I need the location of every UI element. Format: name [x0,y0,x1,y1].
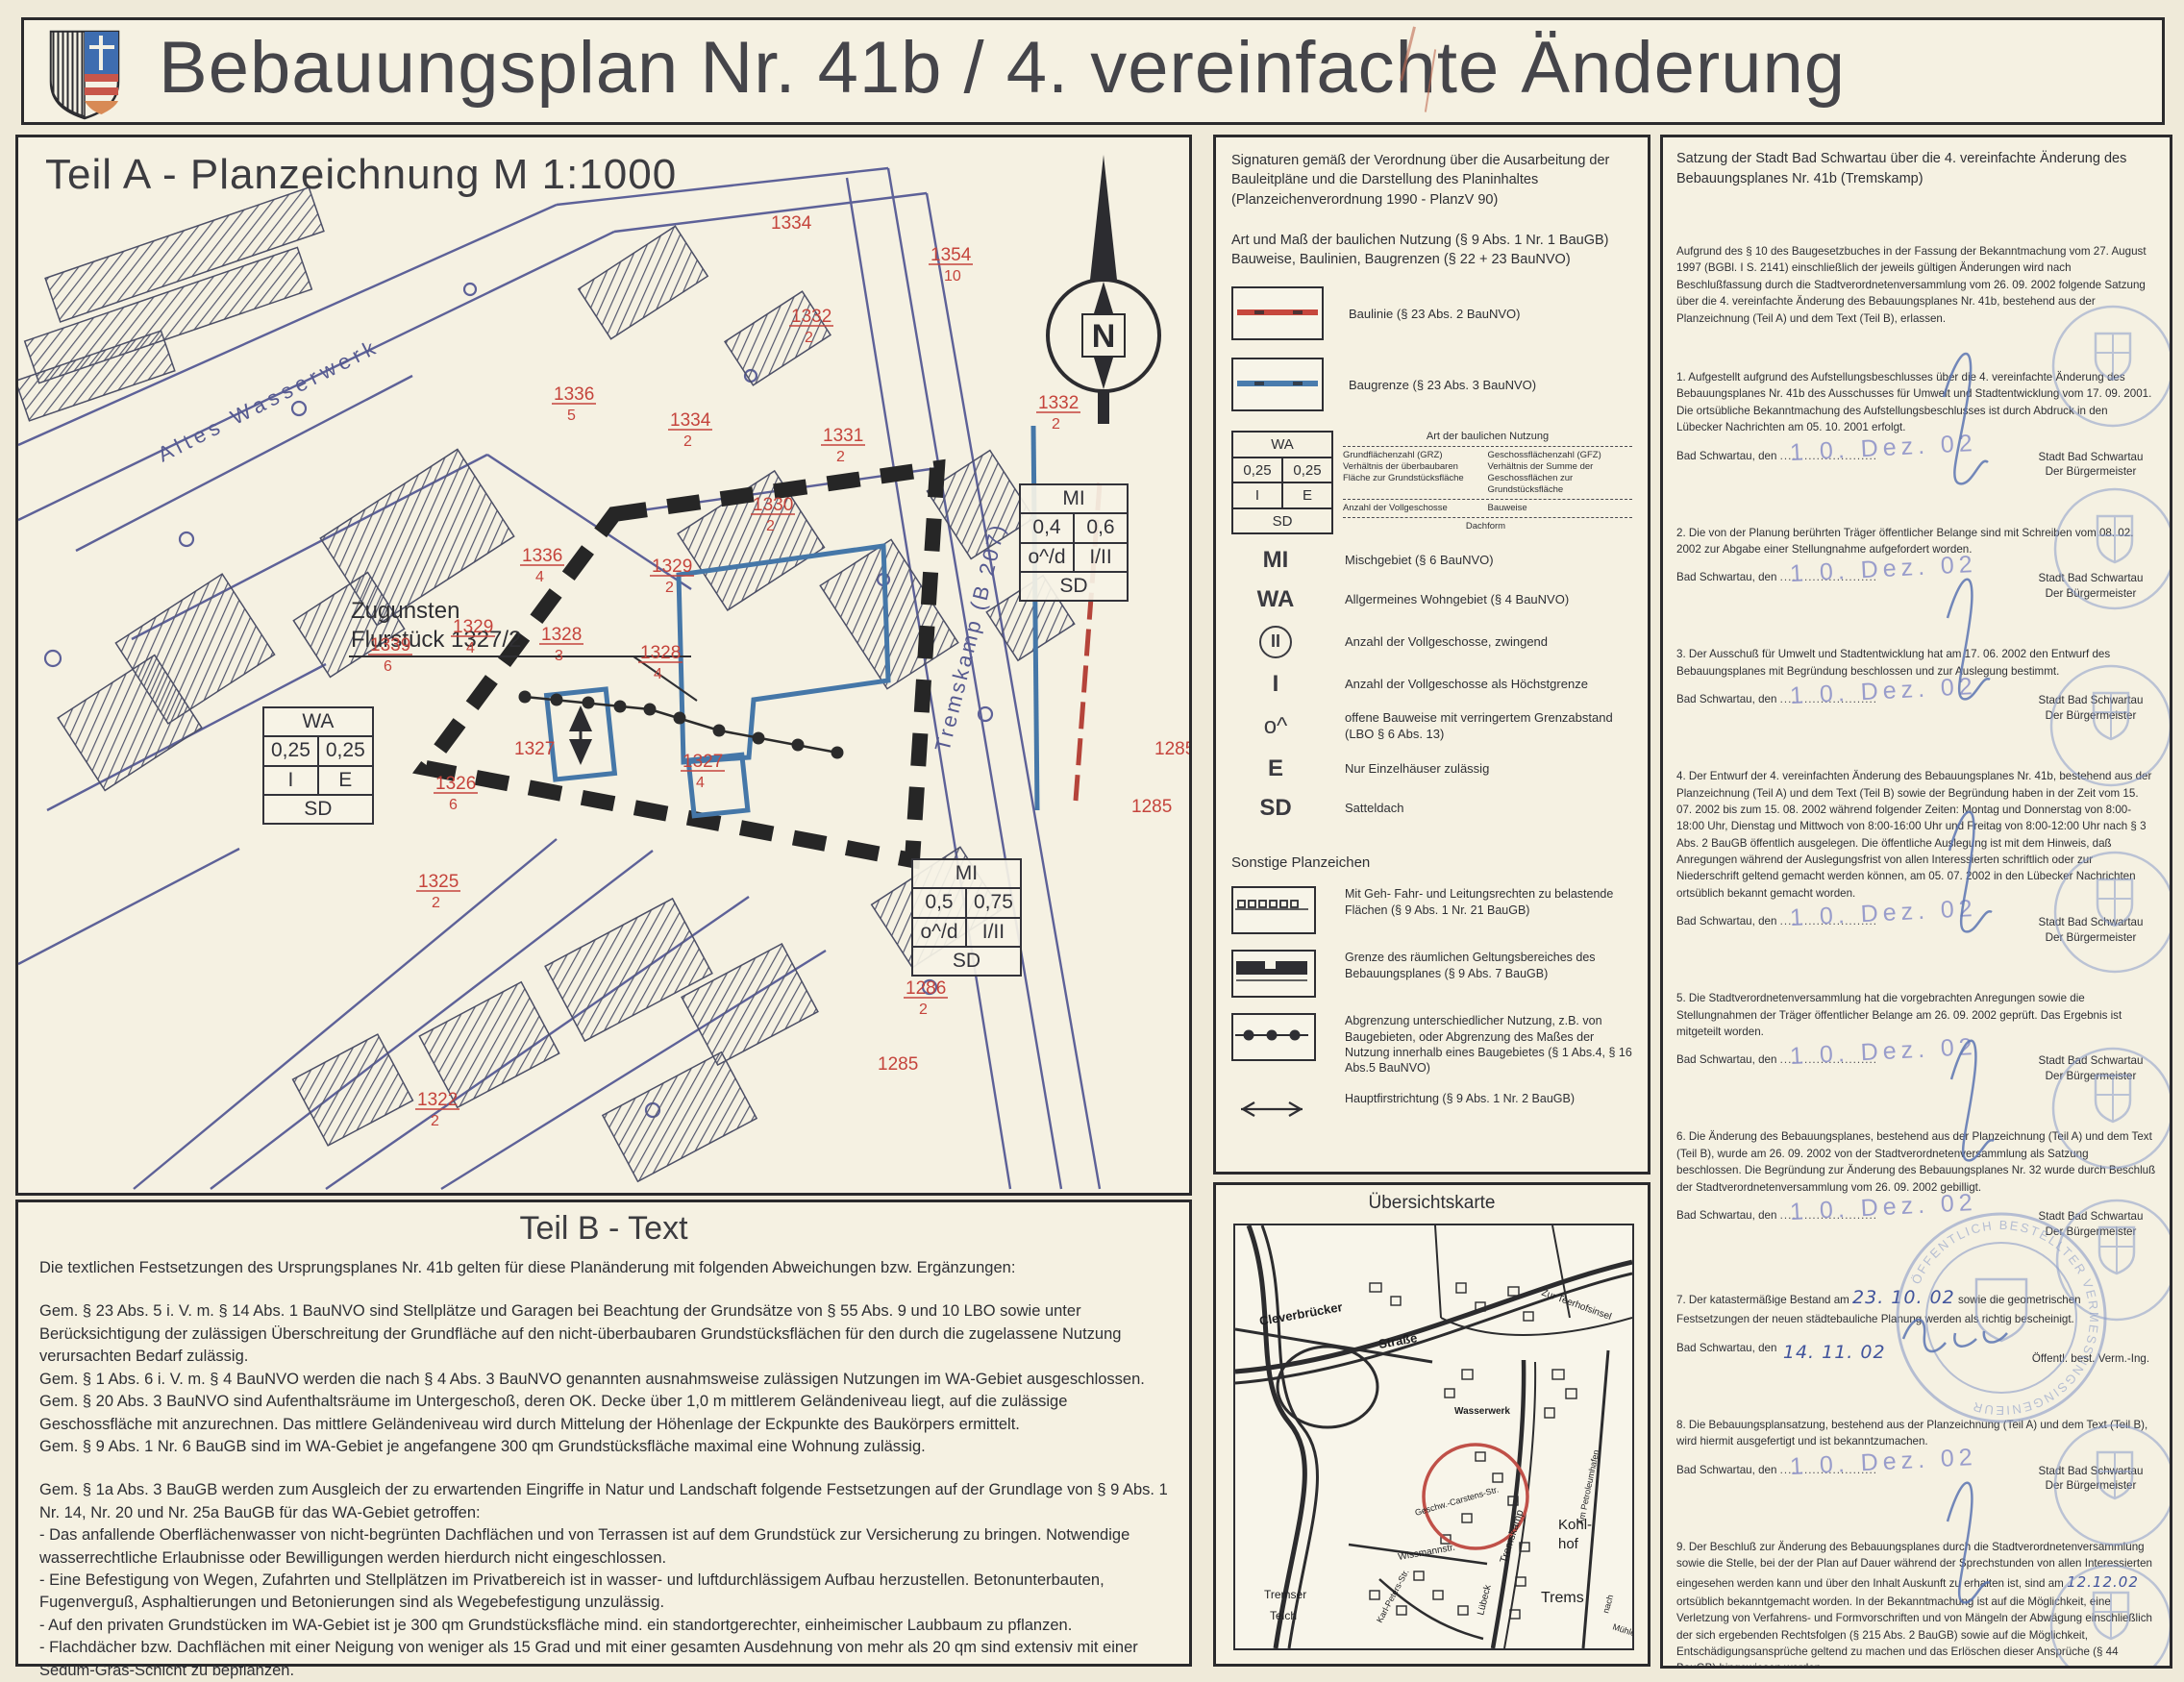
svg-text:6: 6 [384,658,392,675]
svg-text:1330: 1330 [753,495,793,515]
svg-text:2: 2 [919,1002,928,1018]
handwritten-date: 12.12.02 [2067,1573,2139,1591]
signature-row-5: Bad Schwartau, den .....................… [1676,1053,2156,1096]
floors-value: I/II [966,918,1021,947]
page-title: Bebauungsplan Nr. 41b / 4. vereinfachte … [159,26,2148,110]
parcel-number: 13266 [434,774,478,813]
svg-text:1331: 1331 [823,426,863,446]
parcel-number: 13312 [821,426,865,465]
roof-value: SD [1020,572,1128,601]
legend-abbrev-floors-mandatory: II Anzahl der Vollgeschosse, zwingend [1231,626,1632,658]
overview-map-label: hof [1558,1536,1579,1552]
legend-item-geltungsbereich: Grenze des räumlichen Geltungsbereiches … [1231,950,1632,998]
satzung-item-6: 6. Die Änderung des Bebauungsplanes, bes… [1676,1128,2156,1196]
parcel-number: 13283 [539,625,583,664]
legend-item-hauptfirstrichtung: Hauptfirstrichtung (§ 9 Abs. 1 Nr. 2 Bau… [1231,1091,1632,1125]
svg-text:N: N [1092,318,1116,355]
mi-usage-box-2: MI 0,50,75 o^/dI/II SD [911,858,1022,977]
svg-text:1334: 1334 [670,410,711,431]
grz-value: 0,25 [263,736,318,765]
svg-text:1339: 1339 [370,635,410,655]
north-arrow-icon: N [1048,155,1159,424]
svg-text:1328: 1328 [541,625,582,645]
handwritten-date: 14. 11. 02 [1783,1342,1886,1363]
bauweise-value: E [318,766,373,795]
svg-text:1286: 1286 [906,978,946,999]
legend-abbrev-wa: WA Allgermeines Wohngebiet (§ 4 BauNVO) [1231,586,1632,613]
usage-code: MI [1020,484,1128,513]
overview-map-label: Wissmannstr. [1398,1543,1456,1563]
parcel-number: 13396 [368,635,412,675]
satzung-item-5: 5. Die Stadtverordnetenversammlung hat d… [1676,990,2156,1040]
overview-map-label: Cleverbrücker [1258,1299,1344,1328]
grz-value: 0,4 [1020,513,1074,542]
parcel-number: 13364 [520,546,564,585]
plan-map: N Altes Wasserwerk Tremskamp (B 207) Zug… [18,137,1189,1193]
svg-text:2: 2 [431,1113,439,1129]
teil-b-paragraph: Gem. § 9 Abs. 1 Nr. 6 BauGB sind im WA-G… [39,1436,1168,1458]
legend-item-geh-fahr-leitungsrechte: Mit Geh- Fahr- und Leitungsrechten zu be… [1231,886,1632,934]
svg-text:1354: 1354 [931,245,972,265]
signature-row-4: Bad Schwartau, den .....................… [1676,915,2156,957]
legend-item-baulinie: Baulinie (§ 23 Abs. 2 BauNVO) [1231,286,1632,340]
svg-text:6: 6 [449,797,458,813]
svg-text:2: 2 [1052,416,1060,433]
city-crest-icon [47,28,122,120]
circled-floors-icon: II [1259,626,1292,658]
svg-text:5: 5 [567,408,576,424]
parcel-number: 1285 [878,1054,918,1075]
satzung-item-9: 9. Der Beschluß zur Änderung des Bebauun… [1676,1539,2156,1669]
svg-text:1285: 1285 [1131,797,1172,817]
parcel-number: 13365 [552,384,596,424]
hauptfirstrichtung-icon [1231,1099,1312,1120]
overview-map-label: Zur Teerhofsinsel [1540,1287,1613,1323]
svg-text:1329: 1329 [652,557,692,577]
overview-map-label: Geschw.-Carstens-Str. [1414,1484,1500,1517]
overview-map-labels: CleverbrückerStraßeZur TeerhofsinselWass… [1258,1287,1634,1638]
teil-a-heading: Teil A - Planzeichnung M 1:1000 [45,151,677,199]
svg-text:1327: 1327 [514,739,555,759]
grz-value: 0,5 [912,888,966,917]
overview-map-label: Lübeck [1476,1583,1494,1617]
abgrenzung-icon [1231,1013,1316,1061]
gfz-value: 0,75 [966,888,1021,917]
parcel-number: 1334 [771,213,812,234]
parcel-number: 1285 [1131,797,1172,817]
overview-map-label: Teich [1270,1609,1297,1622]
svg-text:1322: 1322 [417,1090,458,1110]
teil-b-paragraph: Die textlichen Festsetzungen des Ursprun… [39,1257,1168,1279]
teil-b-paragraph: Gem. § 23 Abs. 5 i. V. m. § 14 Abs. 1 Ba… [39,1300,1168,1368]
handwritten-date: 23. 10. 02 [1852,1287,1955,1308]
svg-text:1332: 1332 [1038,393,1079,413]
satzung-item-2: 2. Die von der Planung berührten Träger … [1676,525,2156,558]
svg-text:4: 4 [466,640,475,656]
scanned-zoning-plan-sheet: { "header": { "title": "Bebauungsplan Nr… [0,0,2184,1675]
svg-text:4: 4 [654,666,662,682]
geltungsbereich-icon [1231,950,1316,998]
teil-b-paragraph: - Auf den privaten Grundstücken im WA-Ge… [39,1615,1168,1637]
satzung-item-7: 7. Der katastermäßige Bestand am 23. 10.… [1676,1284,2156,1328]
legend-intro: Signaturen gemäß der Verordnung über die… [1231,151,1632,210]
signature-row-1: Bad Schwartau, den .....................… [1676,450,2156,492]
teil-b-heading: Teil B - Text [39,1210,1168,1248]
teil-b-paragraph: - Eine Befestigung von Wegen, Zufahrten … [39,1570,1168,1615]
gfz-value: 0,6 [1074,513,1128,542]
svg-text:1332: 1332 [791,307,831,327]
signature-row-2: Bad Schwartau, den .....................… [1676,571,2156,613]
satzung-item-8: 8. Die Bebauungsplansatzung, bestehend a… [1676,1417,2156,1450]
svg-text:2: 2 [836,449,845,465]
svg-text:2: 2 [683,433,692,450]
svg-text:10: 10 [944,268,961,284]
legend-abbrev-open-bauweise: o^ offene Bauweise mit verringertem Gren… [1231,710,1632,743]
legend-abbrev-mi: MI Mischgebiet (§ 6 BauNVO) [1231,547,1632,574]
overview-map-label: nach [1601,1594,1615,1615]
overview-map-label: Mühle [1611,1621,1634,1638]
legend-section-title: Art und Maß der baulichen Nutzung (§ 9 A… [1231,231,1632,270]
teil-b-paragraph: Gem. § 20 Abs. 3 BauNVO sind Aufenthalts… [39,1391,1168,1436]
parcel-number: 13292 [650,557,694,596]
roof-value: SD [263,795,373,824]
svg-text:1327: 1327 [682,752,723,772]
floors-value: I [263,766,318,795]
usage-sample-box: WA 0,250,25 IE SD [1231,431,1333,534]
teil-b-paragraph: Gem. § 1a Abs. 3 BauGB werden zum Ausgle… [39,1479,1168,1524]
parcel-number: 13252 [416,872,460,911]
geh-fahr-leitungsrechte-icon [1231,886,1316,934]
overview-map-label: Trems [1541,1590,1584,1606]
signature-row-3: Bad Schwartau, den .....................… [1676,693,2156,735]
satzung-item-3: 3. Der Ausschuß für Umwelt und Stadtentw… [1676,646,2156,680]
svg-text:1285: 1285 [1154,739,1189,759]
parcel-number: 135410 [929,245,973,284]
gfz-value: 0,25 [318,736,373,765]
svg-text:1336: 1336 [522,546,562,566]
signature-row-6: Bad Schwartau, den .....................… [1676,1209,2156,1251]
teil-b-paragraph: - Das anfallende Oberflächenwasser von n… [39,1524,1168,1570]
svg-text:1325: 1325 [418,872,459,892]
satzung-title: Satzung der Stadt Bad Schwartau über die… [1676,149,2156,189]
satzung-item-1: 1. Aufgestellt aufgrund des Aufstellungs… [1676,369,2156,436]
usage-code: MI [912,859,1021,888]
signature-row-8: Bad Schwartau, den .....................… [1676,1464,2156,1506]
legend-section2-title: Sonstige Planzeichen [1231,854,1632,871]
legend-item-baugrenze: Baugrenze (§ 23 Abs. 3 BauNVO) [1231,358,1632,411]
svg-text:2: 2 [805,330,813,346]
legend-panel: Signaturen gemäß der Verordnung über die… [1213,135,1650,1175]
svg-text:1328: 1328 [640,643,681,663]
overview-map-panel: Übersichtskarte [1213,1182,1650,1667]
bauweise-value: o^/d [1020,543,1074,572]
teil-b-panel: Teil B - Text Die textlichen Festsetzung… [15,1200,1192,1667]
usage-descriptors: Art der baulichen Nutzung Grundflächenza… [1343,431,1632,534]
satzung-intro: Aufgrund des § 10 des Baugesetzbuches in… [1676,243,2156,327]
overview-map-label: Wasserwerk [1454,1406,1510,1417]
satzung-item-4: 4. Der Entwurf der 4. vereinfachten Ände… [1676,768,2156,902]
mi-usage-box-1: MI 0,40,6 o^/dI/II SD [1019,483,1129,602]
svg-text:2: 2 [665,580,674,596]
roof-value: SD [912,947,1021,976]
overview-map-label: Kohl- [1558,1517,1592,1533]
svg-text:1329: 1329 [453,617,493,637]
overview-map-title: Übersichtskarte [1216,1193,1648,1214]
bauweise-value: o^/d [912,918,966,947]
svg-text:3: 3 [555,648,563,664]
parcel-number: 12862 [904,978,948,1018]
street-label-altes-wasserwerk: Altes Wasserwerk [154,334,384,466]
svg-text:2: 2 [766,518,775,534]
svg-text:1326: 1326 [435,774,476,794]
floors-value: I/II [1074,543,1128,572]
svg-text:1334: 1334 [771,213,812,234]
svg-text:1336: 1336 [554,384,594,405]
legend-abbrev-satteldach: SD Satteldach [1231,795,1632,822]
parcel-number: 13342 [668,410,712,450]
satzung-panel: Satzung der Stadt Bad Schwartau über die… [1660,135,2172,1669]
signature-row-7: Bad Schwartau, den 14. 11. 02 Öffentl. b… [1676,1342,2156,1384]
usage-sample-block: WA 0,250,25 IE SD Art der baulichen Nutz… [1231,431,1632,534]
svg-text:2: 2 [432,895,440,911]
wa-usage-box: WA 0,250,25 IE SD [262,706,374,825]
overview-map-label: Tremser [1264,1588,1306,1601]
parcel-number: 13274 [681,752,725,791]
parcel-number: 13284 [638,643,682,682]
parcel-number: 13322 [1036,393,1080,433]
teil-a-panel: N Altes Wasserwerk Tremskamp (B 207) Zug… [15,135,1192,1196]
baugrenze-icon [1231,358,1324,411]
legend-abbrev-floors-max: I Anzahl der Vollgeschosse als Höchstgre… [1231,671,1632,698]
teil-b-paragraph: Gem. § 1 Abs. 6 i. V. m. § 4 BauNVO werd… [39,1369,1168,1391]
overview-map: CleverbrückerStraßeZur TeerhofsinselWass… [1233,1224,1634,1650]
baulinie-icon [1231,286,1324,340]
header-band: Bebauungsplan Nr. 41b / 4. vereinfachte … [21,17,2165,125]
parcel-number: 1327 [514,739,555,759]
svg-text:1285: 1285 [878,1054,918,1075]
legend-abbrev-einzelhaeuser: E Nur Einzelhäuser zulässig [1231,755,1632,782]
usage-code: WA [263,707,373,736]
svg-text:Zugunsten: Zugunsten [351,598,459,624]
svg-text:4: 4 [696,775,705,791]
svg-text:4: 4 [535,569,544,585]
parcel-number: 1285 [1154,739,1189,759]
legend-item-abgrenzung: Abgrenzung unterschiedlicher Nutzung, z.… [1231,1013,1632,1076]
